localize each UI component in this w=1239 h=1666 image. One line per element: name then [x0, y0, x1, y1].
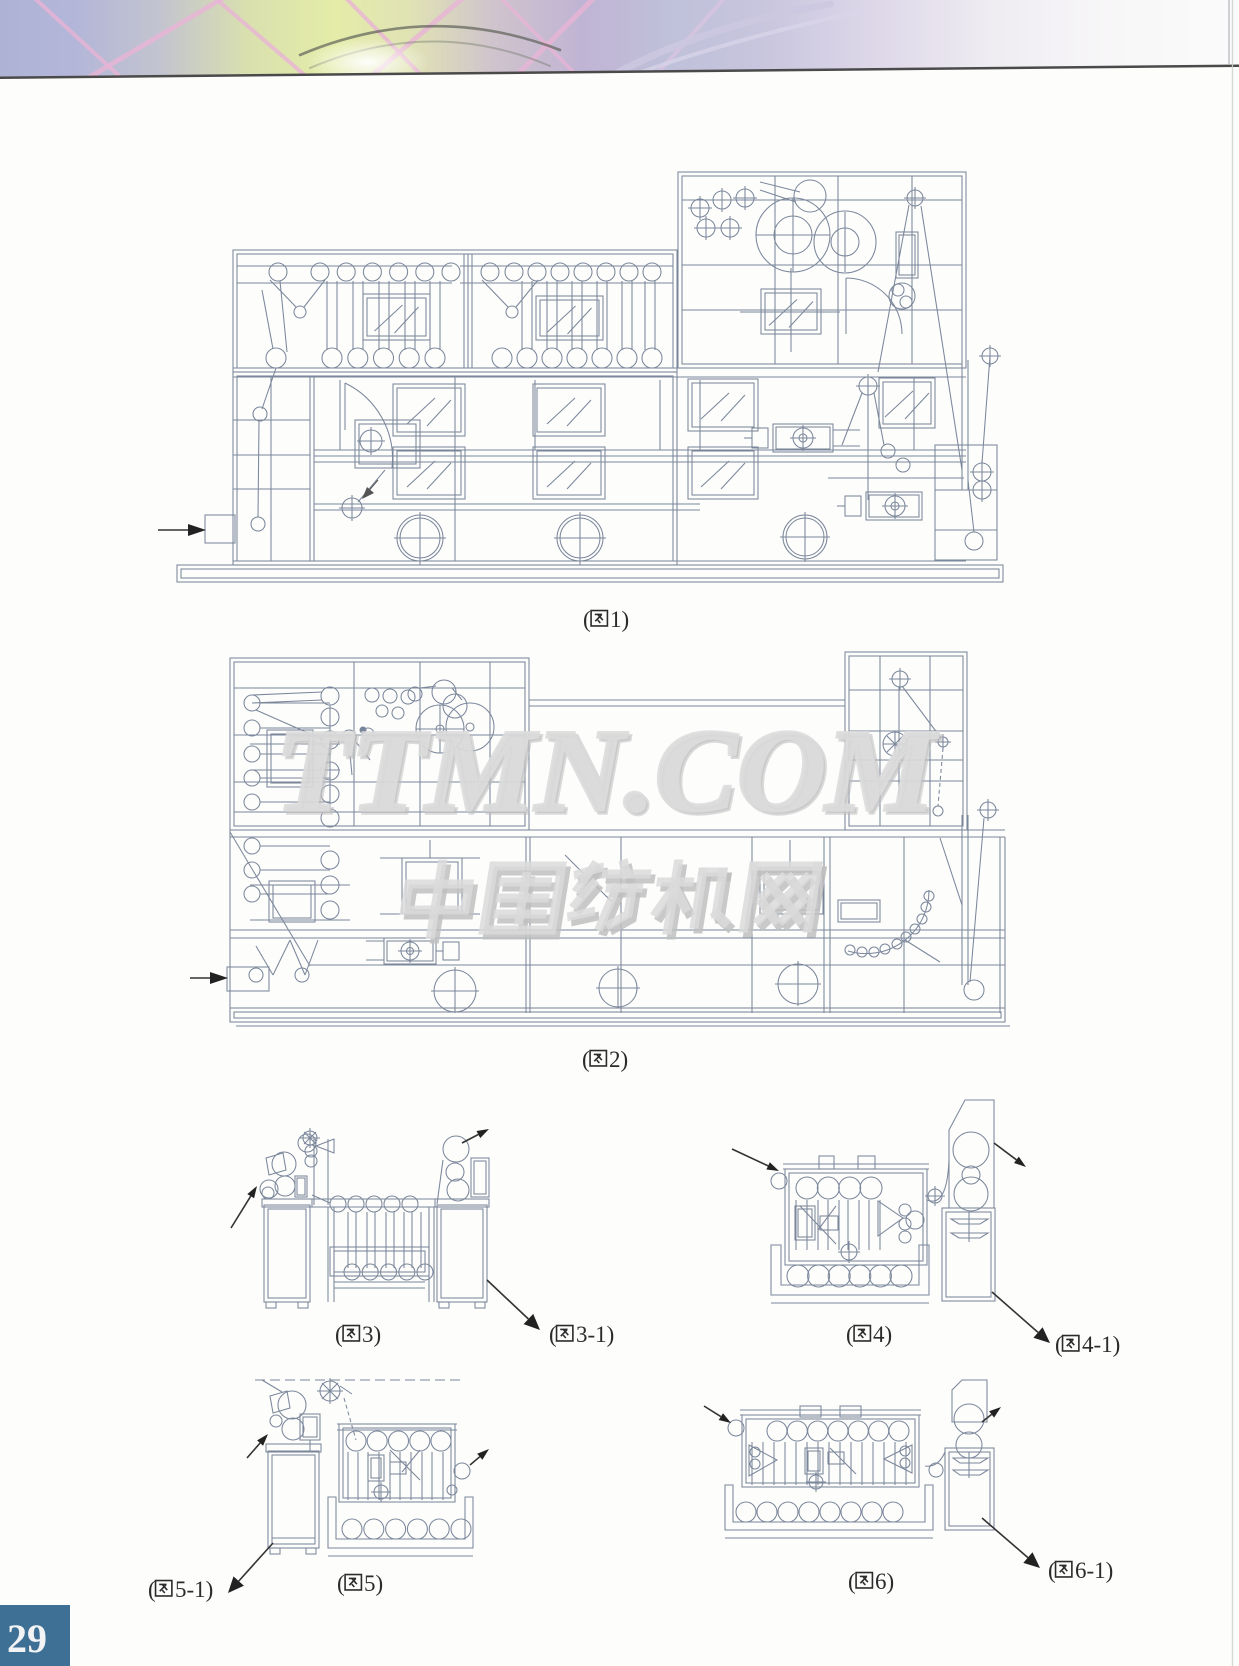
svg-text:3-1): 3-1): [576, 1322, 614, 1347]
svg-text:(: (: [582, 1047, 590, 1072]
svg-text:6): 6): [875, 1569, 894, 1594]
svg-text:(: (: [148, 1577, 156, 1602]
svg-text:(: (: [846, 1322, 854, 1347]
svg-text:TTMN.COM: TTMN.COM: [275, 705, 939, 836]
svg-text:5): 5): [364, 1571, 383, 1596]
svg-text:6-1): 6-1): [1075, 1558, 1113, 1583]
svg-text:(: (: [1055, 1332, 1063, 1357]
svg-text:29: 29: [7, 1616, 47, 1661]
svg-text:4-1): 4-1): [1082, 1332, 1120, 1357]
svg-text:(: (: [335, 1322, 343, 1347]
svg-text:(: (: [583, 607, 591, 632]
svg-text:2): 2): [609, 1047, 628, 1072]
svg-text:4): 4): [873, 1322, 892, 1347]
svg-text:(: (: [337, 1571, 345, 1596]
svg-text:5-1): 5-1): [175, 1577, 213, 1602]
svg-text:(: (: [1048, 1558, 1056, 1583]
svg-text:(: (: [549, 1322, 557, 1347]
svg-text:3): 3): [362, 1322, 381, 1347]
svg-text:(: (: [848, 1569, 856, 1594]
svg-text:1): 1): [610, 607, 629, 632]
